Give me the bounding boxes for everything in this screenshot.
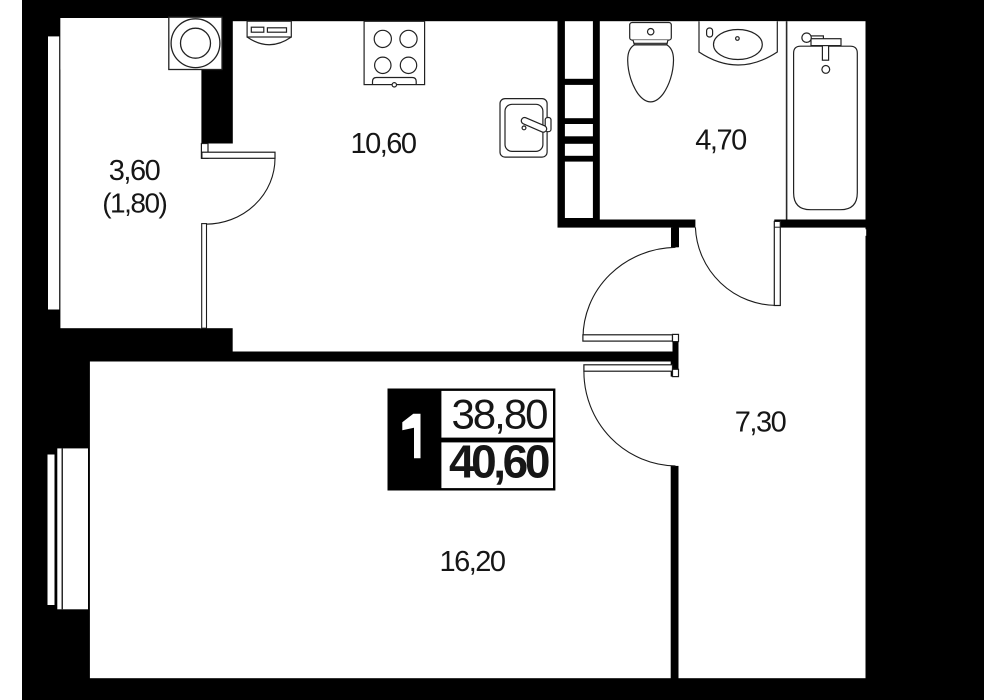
svg-text:38,80: 38,80	[451, 391, 547, 438]
svg-text:4,70: 4,70	[695, 125, 746, 157]
svg-text:10,60: 10,60	[350, 128, 415, 160]
svg-text:40,60: 40,60	[449, 436, 549, 488]
svg-text:3,60: 3,60	[109, 155, 160, 187]
svg-text:16,20: 16,20	[439, 546, 504, 578]
svg-text:(1,80): (1,80)	[102, 188, 166, 219]
svg-text:7,30: 7,30	[735, 407, 786, 439]
